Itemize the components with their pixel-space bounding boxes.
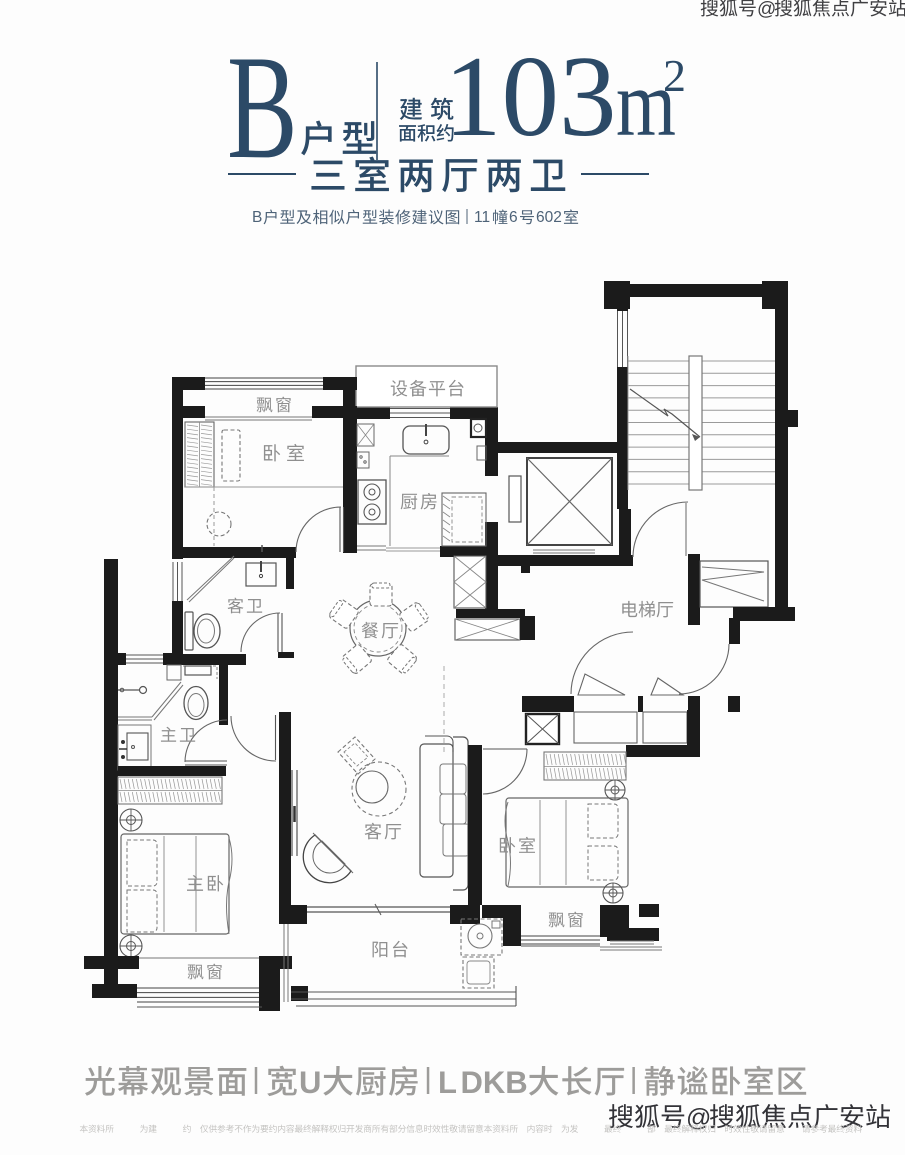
svg-text:@: @ [686, 1104, 711, 1132]
svg-text:6: 6 [509, 209, 518, 226]
svg-text:U: U [299, 1065, 321, 1100]
svg-text:K: K [483, 1065, 506, 1100]
svg-text:602: 602 [536, 209, 562, 226]
svg-text:103: 103 [444, 33, 617, 160]
svg-text:2: 2 [663, 50, 686, 101]
svg-text:B: B [252, 209, 262, 226]
svg-text:B: B [227, 24, 298, 189]
svg-text:L: L [438, 1065, 457, 1100]
svg-text:@: @ [757, 0, 776, 20]
svg-text:D: D [460, 1065, 482, 1100]
svg-text:B: B [505, 1065, 527, 1100]
svg-text:11: 11 [474, 209, 490, 226]
